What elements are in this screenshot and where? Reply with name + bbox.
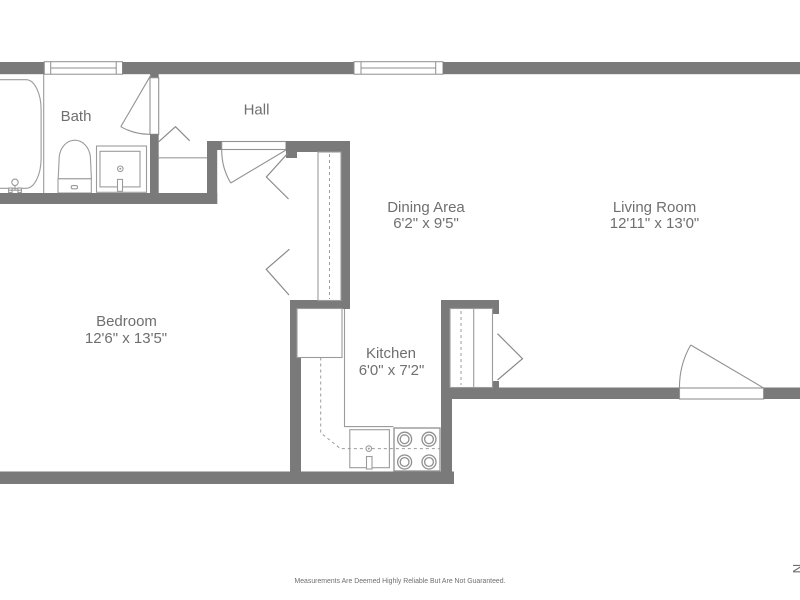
svg-text:6'2" x 9'5": 6'2" x 9'5" <box>393 215 459 232</box>
svg-text:Bedroom: Bedroom <box>96 313 157 330</box>
svg-text:12'11" x 13'0": 12'11" x 13'0" <box>610 215 700 232</box>
svg-text:Living Room: Living Room <box>613 199 696 216</box>
svg-text:12'6" x 13'5": 12'6" x 13'5" <box>85 330 167 347</box>
svg-text:Hall: Hall <box>244 101 270 118</box>
svg-text:Dining Area: Dining Area <box>387 199 465 216</box>
svg-text:Bath: Bath <box>61 108 92 125</box>
svg-text:Measurements Are Deemed Highly: Measurements Are Deemed Highly Reliable … <box>294 578 505 585</box>
svg-text:N: N <box>790 564 800 574</box>
svg-text:Kitchen: Kitchen <box>366 345 416 362</box>
svg-text:6'0" x 7'2": 6'0" x 7'2" <box>359 362 425 379</box>
